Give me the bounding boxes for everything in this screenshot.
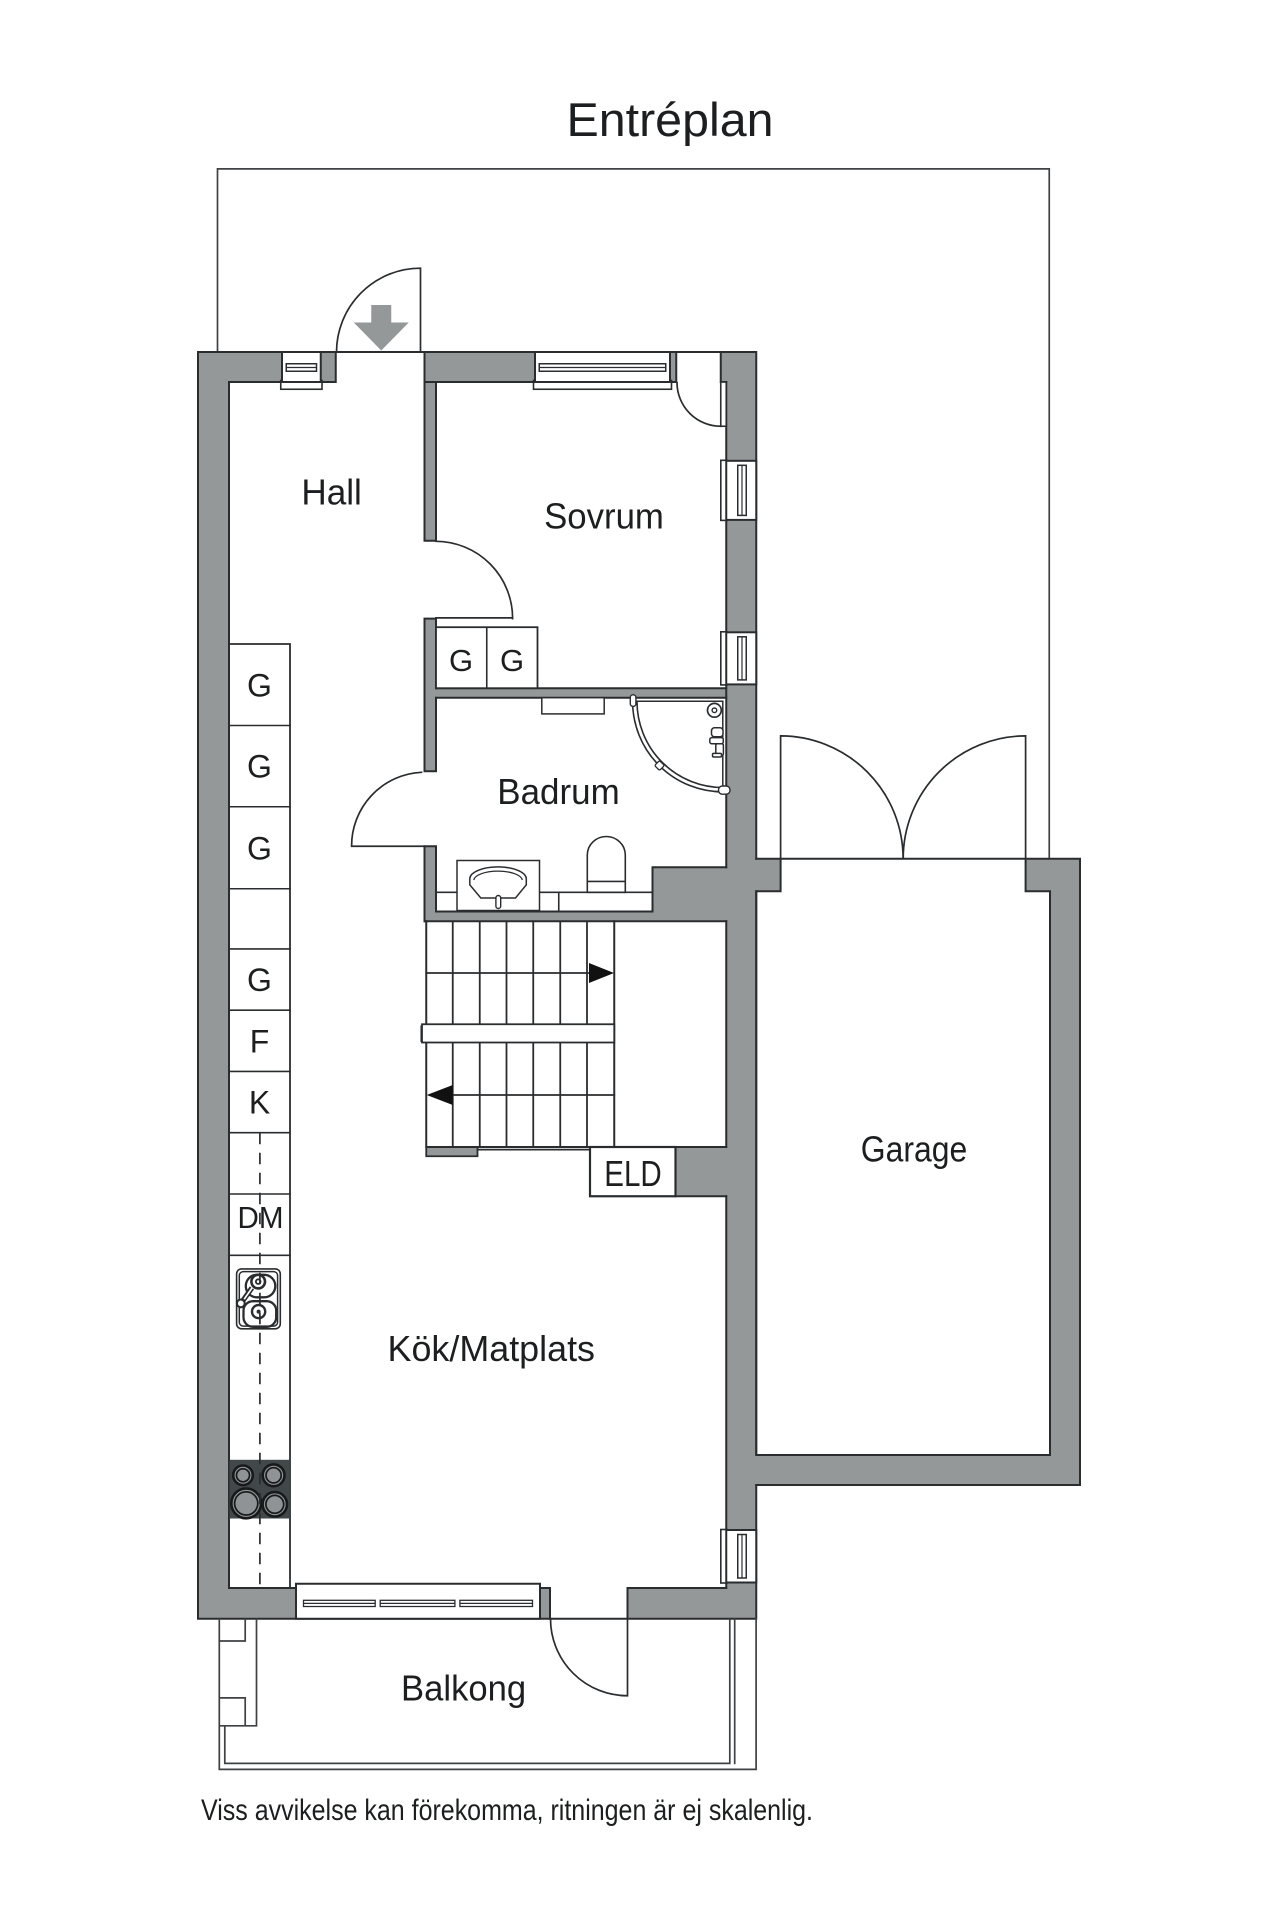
svg-text:Kök/Matplats: Kök/Matplats xyxy=(388,1328,596,1369)
svg-text:Hall: Hall xyxy=(301,471,362,512)
svg-text:G: G xyxy=(449,643,473,678)
svg-text:K: K xyxy=(249,1085,270,1121)
svg-text:ELD: ELD xyxy=(604,1153,662,1194)
svg-text:G: G xyxy=(247,749,272,785)
svg-text:Badrum: Badrum xyxy=(497,771,619,812)
svg-text:Viss avvikelse kan förekomma,: Viss avvikelse kan förekomma, ritningen … xyxy=(201,1794,813,1827)
svg-text:Sovrum: Sovrum xyxy=(544,495,664,536)
svg-text:F: F xyxy=(250,1023,270,1059)
svg-text:Balkong: Balkong xyxy=(401,1668,526,1709)
svg-text:Garage: Garage xyxy=(861,1129,968,1170)
svg-text:G: G xyxy=(247,962,272,998)
svg-text:G: G xyxy=(500,643,524,678)
svg-text:G: G xyxy=(247,830,272,866)
svg-text:Entréplan: Entréplan xyxy=(567,93,774,146)
svg-text:G: G xyxy=(247,667,272,703)
